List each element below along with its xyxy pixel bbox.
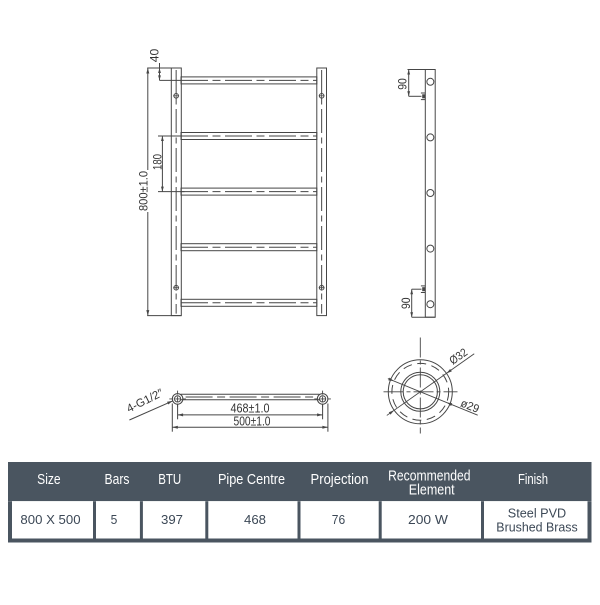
svg-text:Ø32: Ø32: [448, 347, 470, 368]
svg-text:4-G1/2″: 4-G1/2″: [125, 387, 165, 415]
svg-text:90: 90: [396, 78, 410, 90]
svg-text:Projection: Projection: [311, 472, 369, 488]
svg-text:Element: Element: [409, 483, 455, 499]
svg-text:200 W: 200 W: [408, 513, 448, 527]
svg-text:Steel PVD: Steel PVD: [508, 507, 566, 521]
svg-text:Size: Size: [37, 472, 61, 488]
svg-text:Brushed Brass: Brushed Brass: [496, 521, 577, 535]
svg-text:468: 468: [244, 513, 266, 527]
svg-text:468±1.0: 468±1.0: [231, 401, 270, 415]
svg-text:Bars: Bars: [105, 472, 130, 488]
svg-text:Pipe Centre: Pipe Centre: [218, 472, 285, 488]
svg-text:800 X 500: 800 X 500: [20, 513, 80, 527]
svg-text:76: 76: [332, 513, 345, 527]
svg-text:800±1.0: 800±1.0: [136, 171, 150, 211]
svg-text:500±1.0: 500±1.0: [234, 414, 271, 428]
svg-text:ø29: ø29: [459, 398, 481, 416]
svg-text:397: 397: [161, 513, 183, 527]
svg-text:40: 40: [147, 48, 161, 62]
svg-text:Finish: Finish: [518, 472, 548, 488]
svg-text:90: 90: [399, 297, 413, 309]
svg-text:180: 180: [153, 154, 165, 170]
svg-text:BTU: BTU: [158, 472, 181, 488]
svg-text:5: 5: [111, 513, 118, 527]
